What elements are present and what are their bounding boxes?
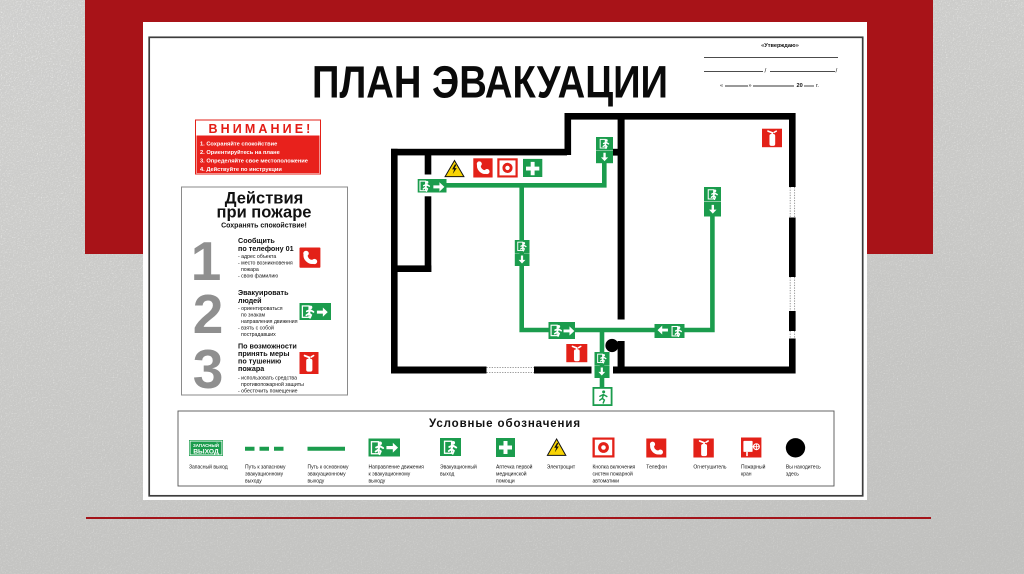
svg-text:выходу: выходу <box>245 479 262 485</box>
svg-text:ВНИМАНИЕ!: ВНИМАНИЕ! <box>209 122 314 136</box>
svg-text:помощи: помощи <box>496 479 515 485</box>
svg-text:ПЛАН ЭВАКУАЦИИ: ПЛАН ЭВАКУАЦИИ <box>312 57 668 108</box>
svg-text:/: / <box>836 68 838 75</box>
svg-text:к эвакуационному: к эвакуационному <box>369 472 411 478</box>
svg-text:- адрес объекта: - адрес объекта <box>238 254 276 260</box>
svg-text:Запасный выход: Запасный выход <box>189 464 228 471</box>
svg-text:выходу: выходу <box>369 479 386 485</box>
svg-text:систем пожарной: систем пожарной <box>593 471 634 478</box>
svg-text:Телефон: Телефон <box>646 465 667 471</box>
svg-text:Сохранять спокойствие!: Сохранять спокойствие! <box>221 222 307 230</box>
svg-text:ВЫХОД: ВЫХОД <box>193 448 219 455</box>
svg-text:3: 3 <box>193 338 224 400</box>
svg-text:по знакам: по знакам <box>241 313 266 319</box>
svg-text:Огнетушитель: Огнетушитель <box>693 465 727 471</box>
svg-text:4. Действуйте по инструкции: 4. Действуйте по инструкции <box>200 166 282 173</box>
svg-text:2: 2 <box>193 283 224 345</box>
svg-text:- использовать средства: - использовать средства <box>238 376 297 382</box>
svg-text:выход: выход <box>440 472 454 478</box>
svg-text:Аптечка первой: Аптечка первой <box>496 464 533 471</box>
svg-text:Пожарный: Пожарный <box>741 464 766 471</box>
svg-text:Условные обозначения: Условные обозначения <box>429 418 581 430</box>
svg-text:выходу: выходу <box>308 479 325 485</box>
svg-text:- свою фамилию: - свою фамилию <box>238 274 278 280</box>
svg-text:20: 20 <box>797 83 803 89</box>
svg-text:3. Определяйте свое местополож: 3. Определяйте свое местоположение <box>200 157 308 164</box>
svg-text:2. Ориентируйтесь на плане: 2. Ориентируйтесь на плане <box>200 149 280 156</box>
svg-text:Путь к основному: Путь к основному <box>308 465 349 471</box>
svg-text:пострадавших: пострадавших <box>241 332 276 338</box>
svg-text:эвакуационному: эвакуационному <box>245 472 284 478</box>
svg-text:кран: кран <box>741 472 752 478</box>
svg-text:Путь к запасному: Путь к запасному <box>245 465 286 471</box>
svg-text:направления движения: направления движения <box>241 319 298 325</box>
svg-text:людей: людей <box>238 296 262 305</box>
svg-text:Направление движения: Направление движения <box>369 465 425 471</box>
svg-text:по телефону 01: по телефону 01 <box>238 244 294 253</box>
svg-text:- ориентироваться: - ориентироваться <box>238 306 283 312</box>
svg-text:г.: г. <box>816 83 819 89</box>
svg-text:Эвакуационный: Эвакуационный <box>440 464 477 471</box>
svg-text:»: » <box>749 83 752 89</box>
svg-text:Электрощит: Электрощит <box>547 465 576 471</box>
svg-text:при пожаре: при пожаре <box>217 204 312 222</box>
svg-text:пожара: пожара <box>238 364 265 373</box>
svg-text:- место возникновения: - место возникновения <box>238 261 293 267</box>
svg-text:/: / <box>765 68 767 75</box>
svg-text:- взять с собой: - взять с собой <box>238 325 274 332</box>
svg-text:ЗАПАСНЫЙ: ЗАПАСНЫЙ <box>193 443 219 448</box>
svg-text:«Утверждаю»: «Утверждаю» <box>761 43 799 49</box>
svg-text:противопожарной защиты: противопожарной защиты <box>241 381 304 388</box>
svg-text:автоматики: автоматики <box>593 479 620 485</box>
svg-text:эвакуационному: эвакуационному <box>308 472 347 478</box>
svg-text:здесь: здесь <box>786 472 799 478</box>
svg-text:- обесточить помещение: - обесточить помещение <box>238 389 298 395</box>
svg-text:Вы находитесь: Вы находитесь <box>786 465 821 471</box>
svg-text:Кнопка включения: Кнопка включения <box>593 465 636 471</box>
svg-text:«: « <box>720 83 723 89</box>
svg-text:пожара: пожара <box>241 267 259 273</box>
svg-text:медицинской: медицинской <box>496 471 527 478</box>
svg-text:1. Сохраняйте спокойствие: 1. Сохраняйте спокойствие <box>200 140 277 147</box>
